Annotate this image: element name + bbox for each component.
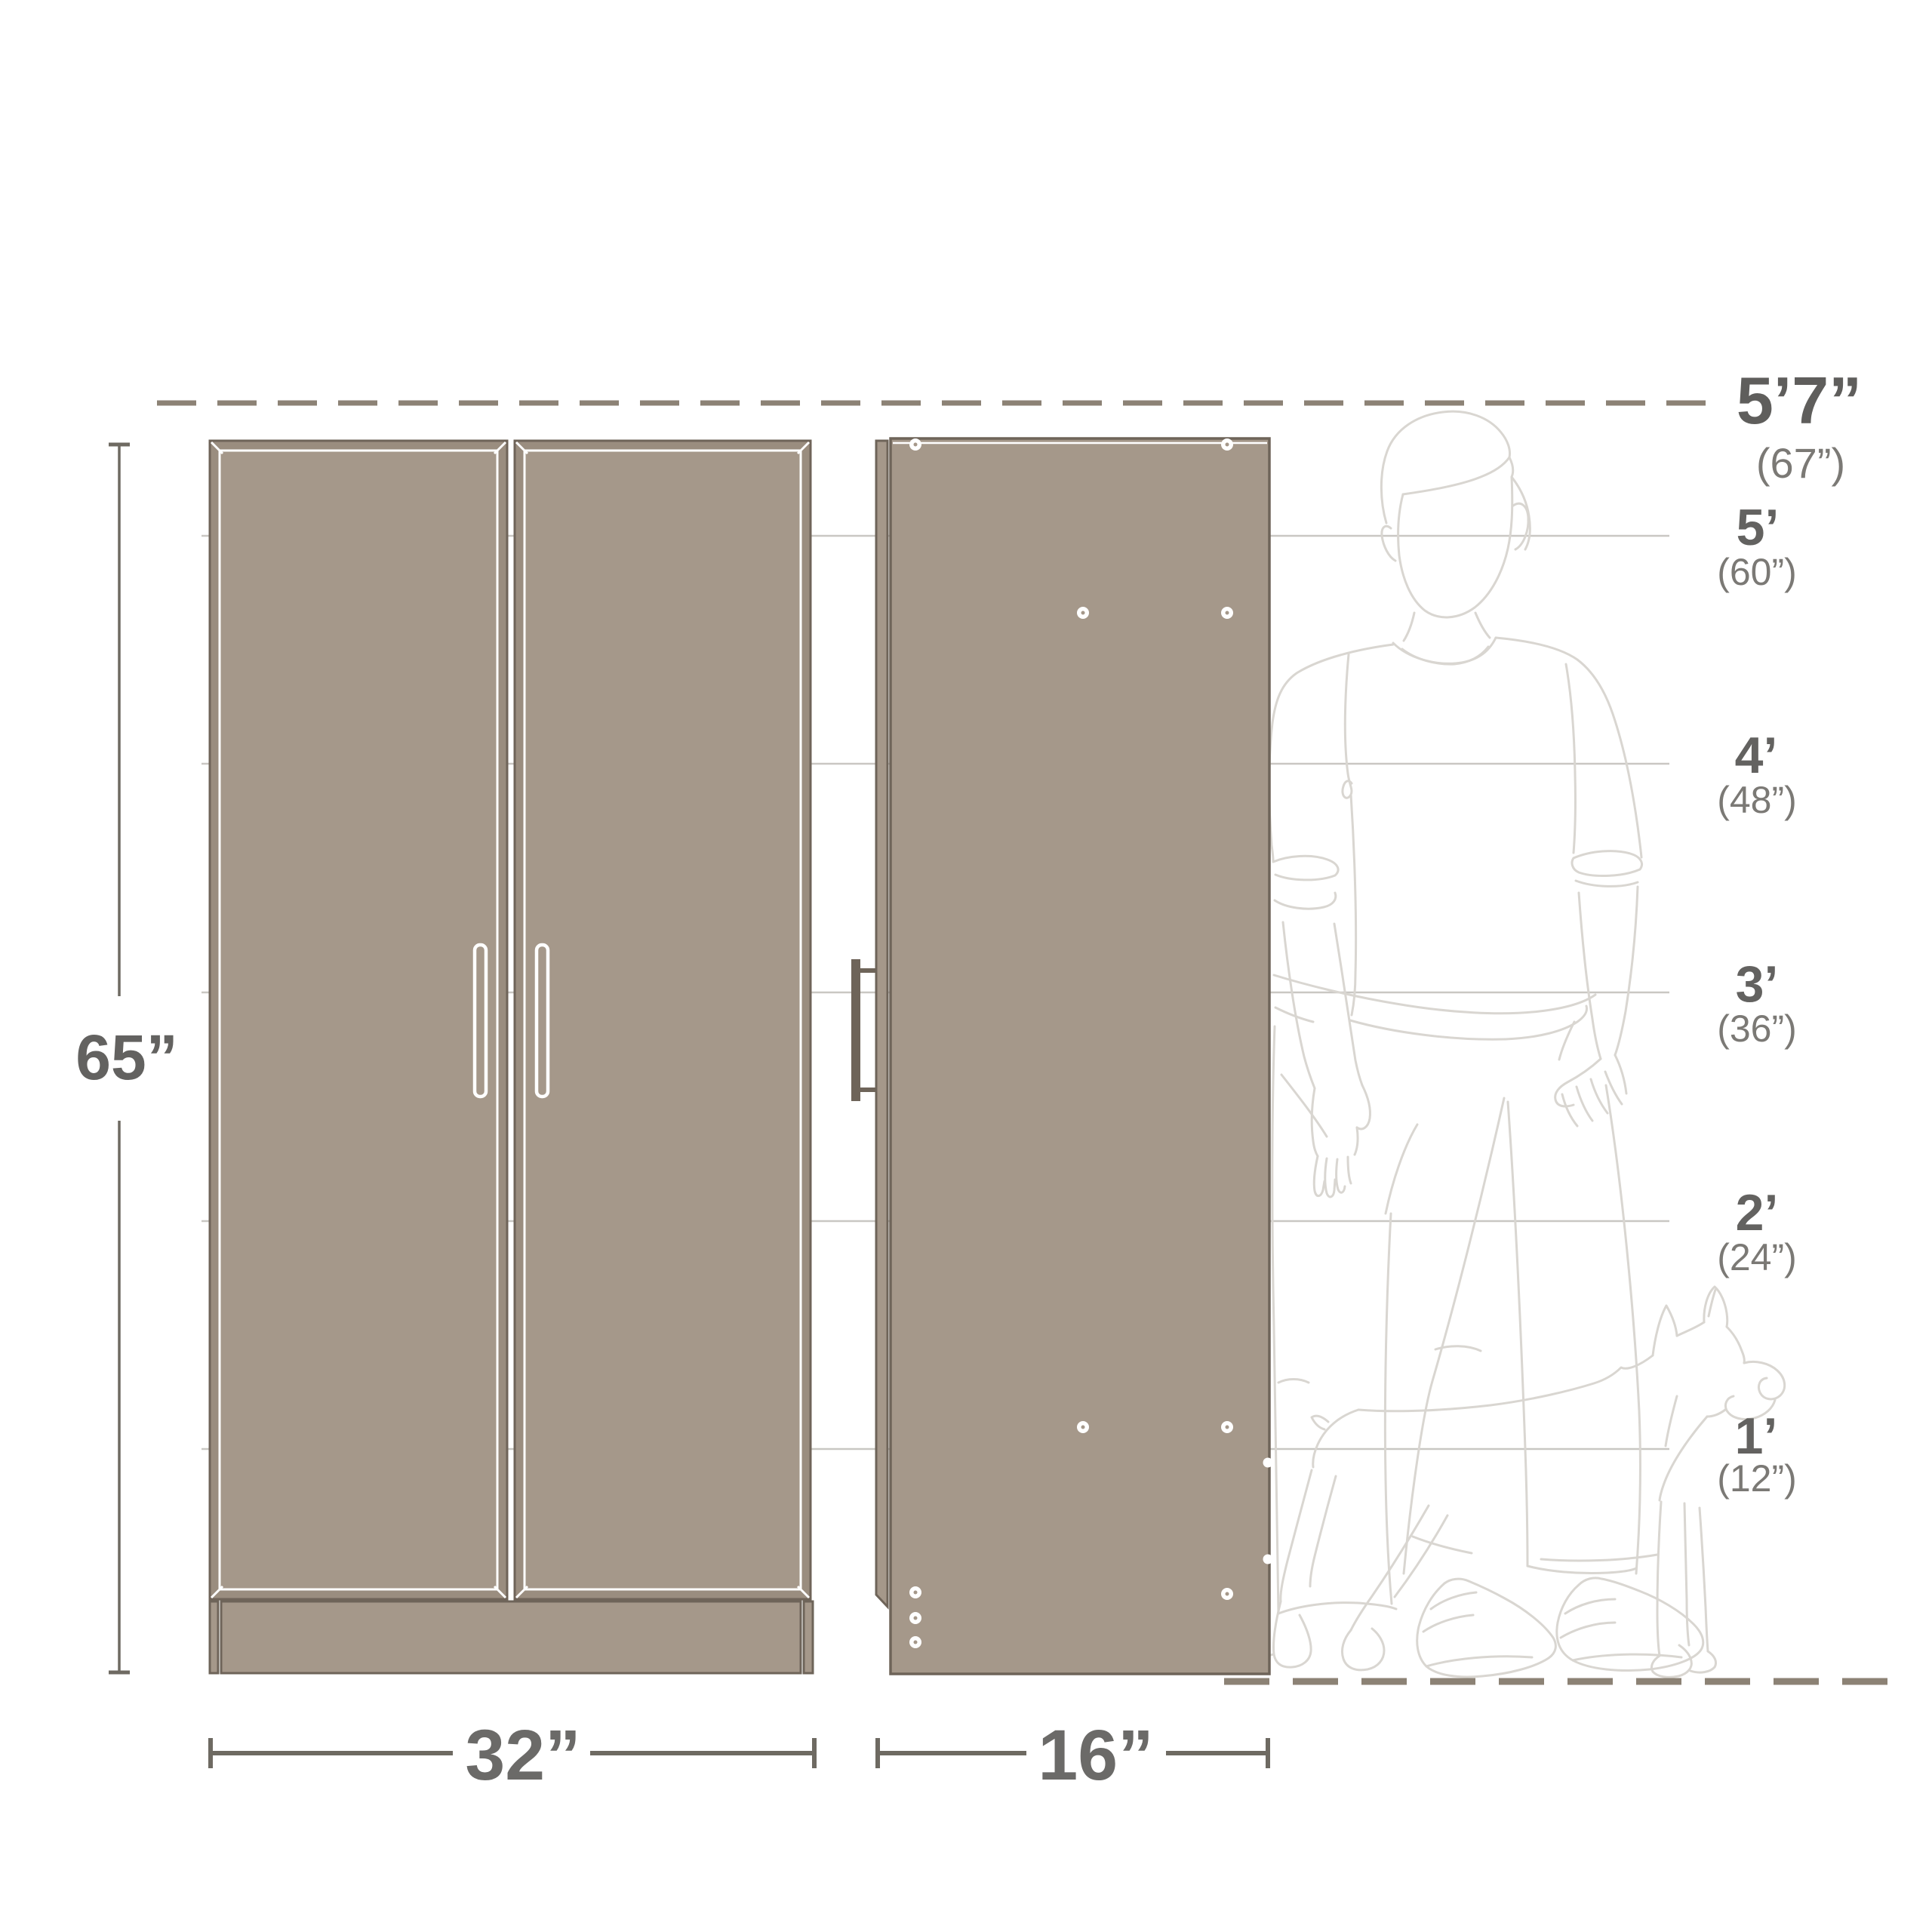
svg-text:(67”): (67”) (1756, 439, 1845, 487)
svg-text:5’: 5’ (1737, 499, 1780, 556)
svg-text:(48”): (48”) (1717, 779, 1797, 821)
svg-text:(12”): (12”) (1717, 1457, 1797, 1500)
svg-text:2’: 2’ (1736, 1184, 1779, 1241)
svg-text:4’: 4’ (1735, 727, 1778, 784)
svg-text:3’: 3’ (1736, 955, 1779, 1013)
svg-text:32”: 32” (465, 1715, 580, 1795)
svg-text:16”: 16” (1038, 1715, 1153, 1795)
svg-text:(60”): (60”) (1717, 551, 1797, 593)
svg-text:65”: 65” (75, 1022, 177, 1093)
svg-text:1’: 1’ (1735, 1407, 1778, 1465)
svg-text:5’7”: 5’7” (1737, 363, 1862, 438)
svg-text:(36”): (36”) (1717, 1008, 1797, 1050)
svg-text:(24”): (24”) (1717, 1236, 1797, 1278)
